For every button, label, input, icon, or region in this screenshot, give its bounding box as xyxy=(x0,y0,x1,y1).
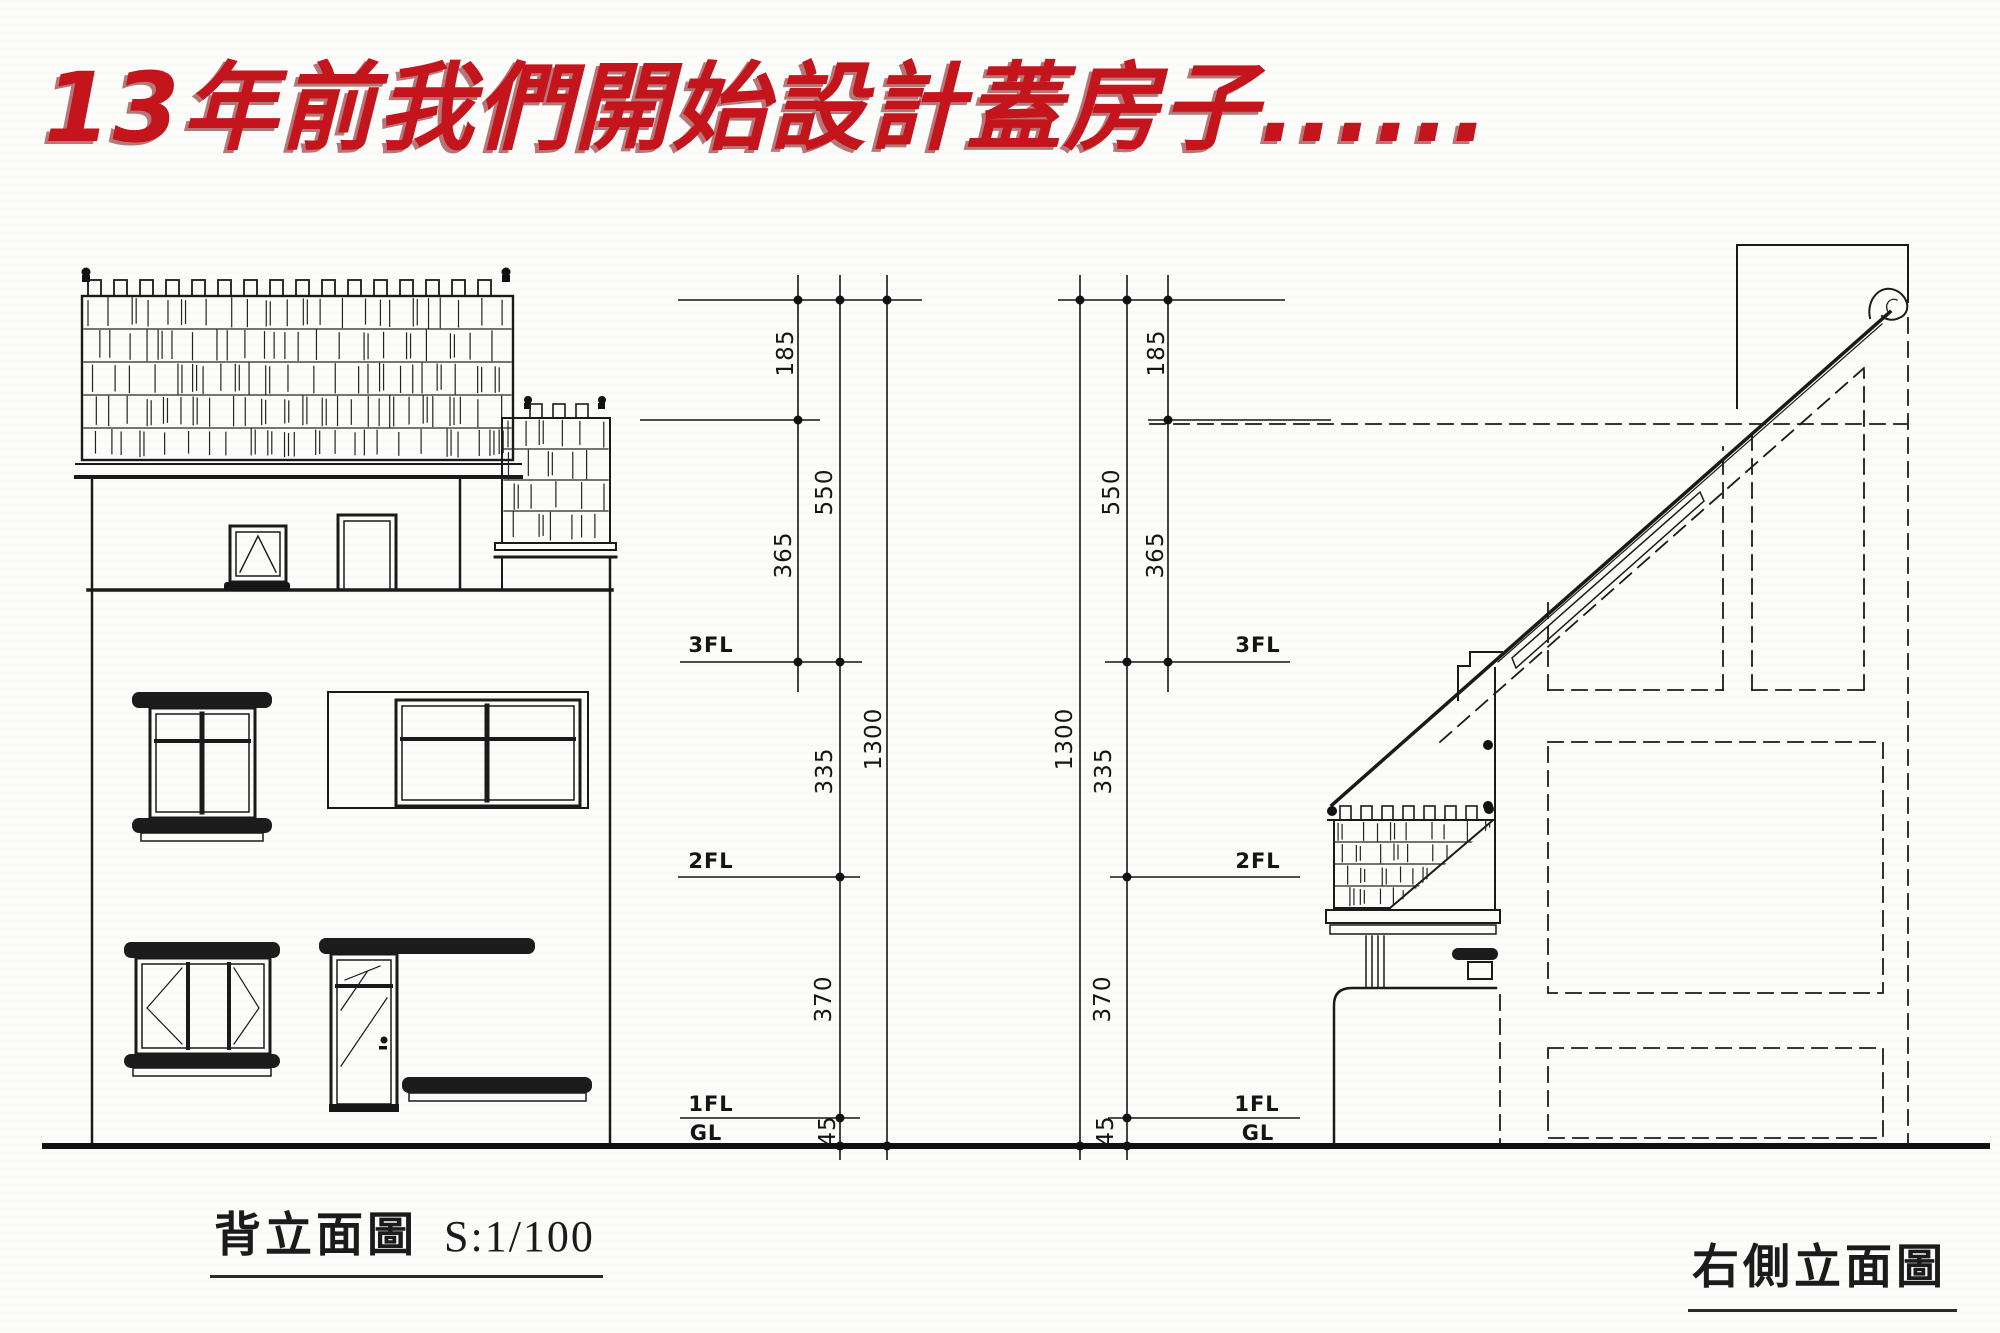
caption-right-elevation: 右側立面圖 xyxy=(1688,1228,1957,1312)
attic-window xyxy=(224,526,290,591)
dim-550-right: 550 xyxy=(1099,469,1125,516)
skylight-strip xyxy=(1512,492,1704,668)
elevation-linework xyxy=(0,0,2000,1333)
balcony-roof-wedge xyxy=(1327,804,1494,908)
dim-335-right: 335 xyxy=(1091,748,1117,795)
floor-label-gl-right: GL xyxy=(1242,1121,1275,1145)
dim-365-right: 365 xyxy=(1143,532,1169,579)
roof-slope xyxy=(1332,312,1890,805)
dim-335-back: 335 xyxy=(812,748,838,795)
right-side-elevation-view xyxy=(1150,245,1908,1143)
balcony-fascia xyxy=(1326,910,1500,923)
floor-label-gl-back: GL xyxy=(690,1121,723,1145)
lower-wall-edge xyxy=(1334,988,1496,1143)
handrail-section xyxy=(1452,948,1498,960)
caption-back-name: 背立面圖 xyxy=(214,1210,418,1262)
caption-right-name: 右側立面圖 xyxy=(1692,1242,1947,1294)
dim-370-back: 370 xyxy=(811,976,837,1023)
scanned-drawing-page: 13年前我們開始設計蓋房子...... xyxy=(0,0,2000,1333)
back-elevation-view xyxy=(76,268,616,1146)
dim-185-back: 185 xyxy=(773,330,799,377)
top-reference-line xyxy=(1737,245,1908,408)
floor-label-3fl-right: 3FL xyxy=(1235,633,1280,657)
floor-label-1fl-back: 1FL xyxy=(688,1092,733,1116)
side-ledge xyxy=(402,1077,592,1101)
floor-label-3fl-back: 3FL xyxy=(688,633,733,657)
roof-ridge-caps xyxy=(88,280,491,296)
floor-label-2fl-right: 2FL xyxy=(1235,849,1280,873)
third-floor-window-left xyxy=(132,692,272,841)
roof-slope-underside xyxy=(1498,324,1882,662)
dim-1300-back: 1300 xyxy=(861,708,887,771)
balcony-slab xyxy=(1330,925,1496,934)
dim-45-back: 45 xyxy=(815,1115,841,1146)
roof-shingles xyxy=(84,297,511,457)
dim-1300-right: 1300 xyxy=(1052,708,1078,771)
balcony-railing-section xyxy=(1366,936,1384,988)
dim-185-right: 185 xyxy=(1144,330,1170,377)
dim-45-right: 45 xyxy=(1093,1115,1119,1146)
dim-370-right: 370 xyxy=(1090,976,1116,1023)
ground-line xyxy=(42,1143,1990,1149)
caption-back-elevation: 背立面圖S:1/100 xyxy=(210,1196,603,1278)
third-floor-window-right xyxy=(328,692,588,808)
first-floor-window xyxy=(124,942,280,1076)
dimension-column-right xyxy=(1058,275,1331,1160)
dim-365-back: 365 xyxy=(771,532,797,579)
floor-label-1fl-right: 1FL xyxy=(1234,1092,1279,1116)
main-roof-shingle-band xyxy=(82,296,513,460)
caption-back-scale: S:1/100 xyxy=(444,1212,595,1261)
hidden-lines xyxy=(1150,318,1908,1143)
dim-550-back: 550 xyxy=(812,469,838,516)
floor-label-2fl-back: 2FL xyxy=(688,849,733,873)
attic-door xyxy=(338,515,396,590)
